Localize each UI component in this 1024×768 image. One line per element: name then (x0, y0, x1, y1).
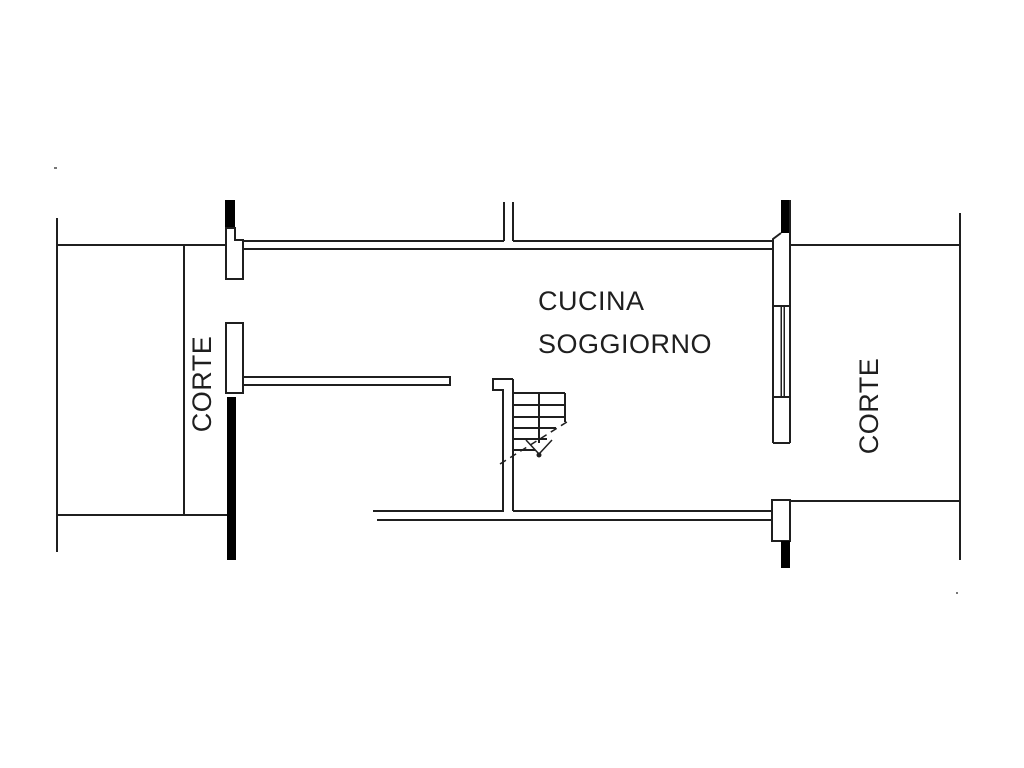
door-jamb-lower-left (226, 323, 243, 393)
room-label-soggiorno: SOGGIORNO (538, 329, 712, 359)
room-labels: CUCINA SOGGIORNO CORTE CORTE (187, 286, 884, 454)
floor-plan-canvas: CUCINA SOGGIORNO CORTE CORTE (0, 0, 1024, 768)
door-jamb-lower-right (772, 500, 790, 541)
staircase-symbol (500, 393, 570, 464)
room-label-corte-right: CORTE (854, 358, 884, 455)
room-label-cucina: CUCINA (538, 286, 645, 316)
speck (54, 167, 57, 169)
interior-partition (243, 377, 450, 385)
top-wall (243, 202, 960, 249)
solid-wall-left-lower (227, 397, 236, 560)
solid-wall-pier-top-left (225, 200, 235, 228)
floor-plan-drawing: CUCINA SOGGIORNO CORTE CORTE (0, 0, 1024, 768)
stair-wall-left-edge (493, 379, 513, 511)
stairwell-wall (493, 379, 513, 511)
stair-direction-dashed-line (500, 420, 570, 464)
right-wall-inner-edge (773, 233, 781, 443)
solid-wall-pier-bottom-right (781, 541, 790, 568)
solid-wall-pier-top-right (781, 200, 790, 233)
room-label-corte-left: CORTE (187, 336, 217, 433)
speck (956, 592, 958, 594)
right-wall (772, 200, 790, 568)
door-jamb-upper-left (226, 228, 243, 279)
interior-wall-horizontal (243, 377, 450, 385)
stair-arrow-dot (537, 453, 542, 458)
left-wall-doorway (225, 200, 243, 560)
stair-treads (514, 393, 565, 450)
bottom-wall (373, 511, 772, 520)
